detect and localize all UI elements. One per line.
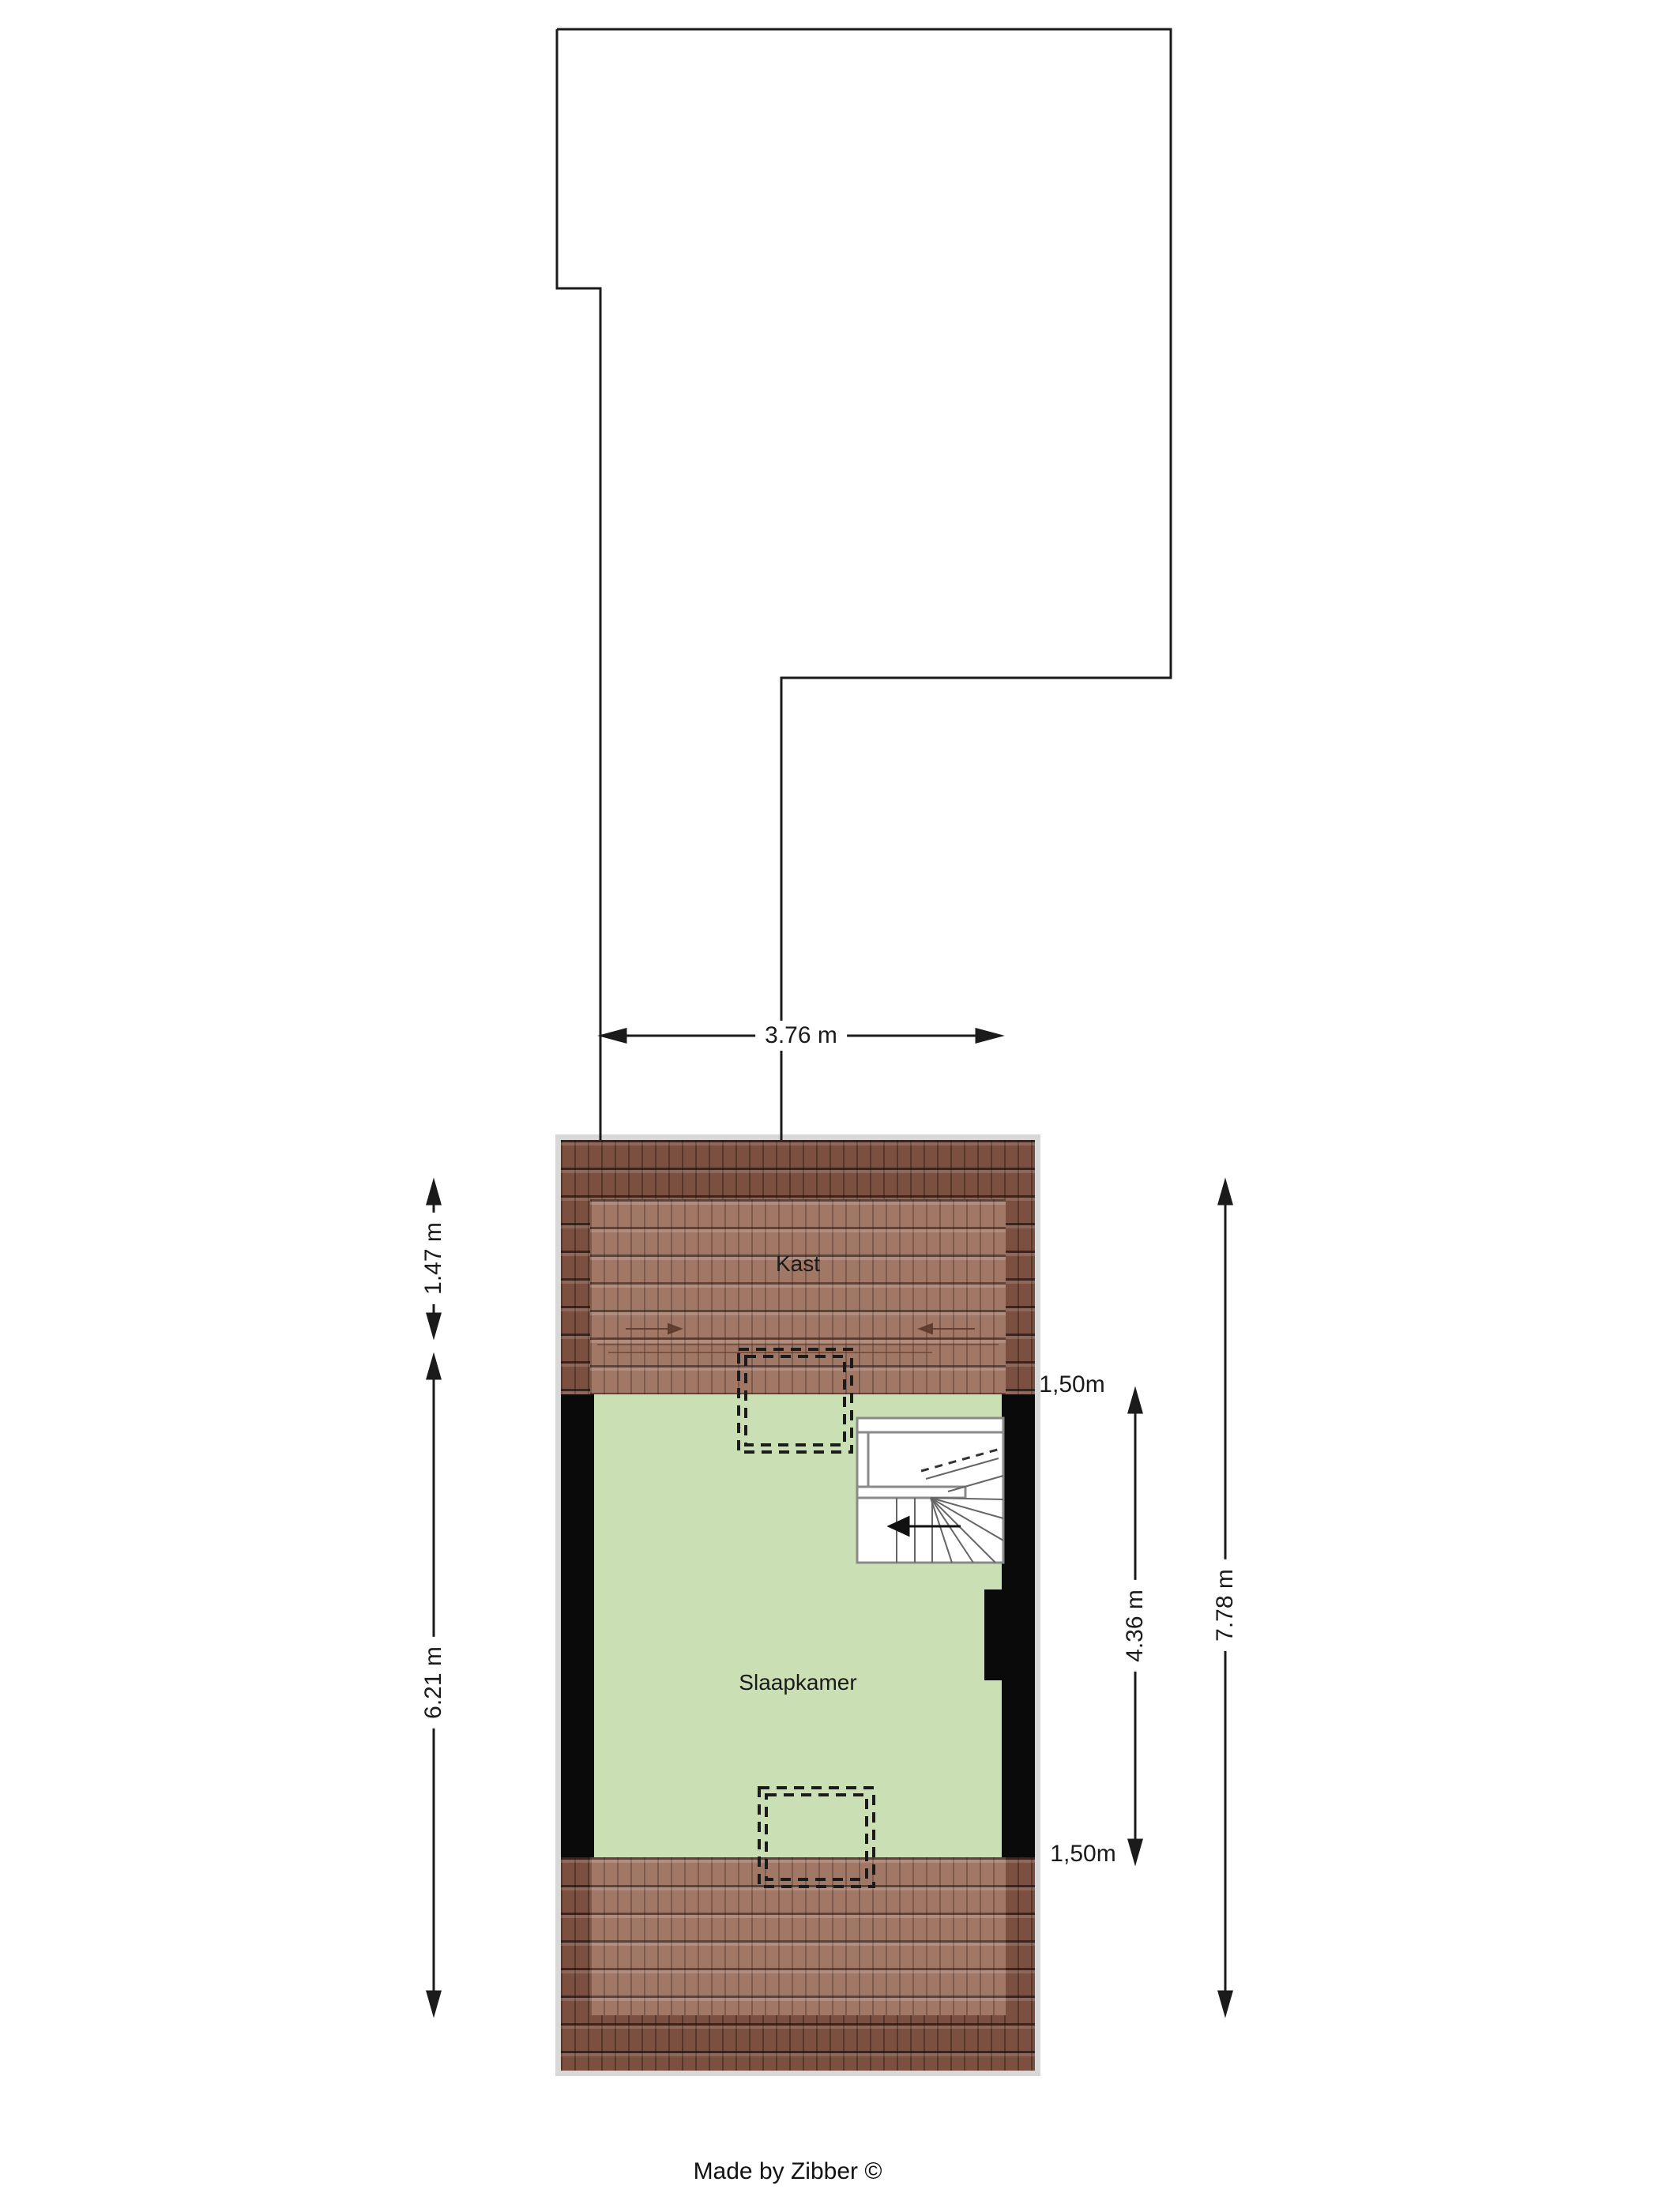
- arrow-down-icon: [427, 1992, 440, 2014]
- arrow-right-icon: [976, 1029, 1000, 1042]
- dormer-outline-top: [739, 1349, 852, 1452]
- floorplan-page: Kast Slaapkamer 3.76 m 1.47 m 6.21 m 4.3…: [0, 0, 1659, 2212]
- arrow-down-icon: [1129, 1840, 1142, 1862]
- plan-outer-border: [559, 1138, 1038, 2074]
- arrow-up-icon: [1219, 1182, 1232, 1204]
- arrow-down-icon: [427, 1314, 440, 1336]
- knee-wall-label-bottom: 1,50m: [1050, 1841, 1115, 1868]
- arrow-down-icon: [1219, 1992, 1232, 2014]
- dimension-label-right-total: 7.78 m: [1210, 1559, 1240, 1651]
- room-label-slaapkamer: Slaapkamer: [739, 1670, 856, 1695]
- knee-wall-label-top: 1,50m: [1039, 1371, 1104, 1398]
- arrow-up-icon: [427, 1182, 440, 1204]
- dimension-label-left-upper: 1.47 m: [419, 1213, 449, 1304]
- room-label-kast: Kast: [776, 1251, 820, 1277]
- roof-outline: [557, 29, 1171, 1140]
- dimension-label-top-width: 3.76 m: [755, 1021, 847, 1051]
- dormer-outline-bottom: [759, 1788, 874, 1887]
- dimension-label-left-lower: 6.21 m: [419, 1637, 449, 1729]
- roof-slope-arrows: [626, 1324, 975, 1334]
- arrow-left-icon: [602, 1029, 626, 1042]
- arrow-up-icon: [1129, 1390, 1142, 1413]
- dimension-label-right-room: 4.36 m: [1120, 1580, 1150, 1672]
- floorplan-linework: [0, 0, 1659, 2212]
- arrow-up-icon: [427, 1356, 440, 1379]
- staircase: [857, 1418, 1003, 1563]
- credit-text: Made by Zibber ©: [694, 2158, 882, 2185]
